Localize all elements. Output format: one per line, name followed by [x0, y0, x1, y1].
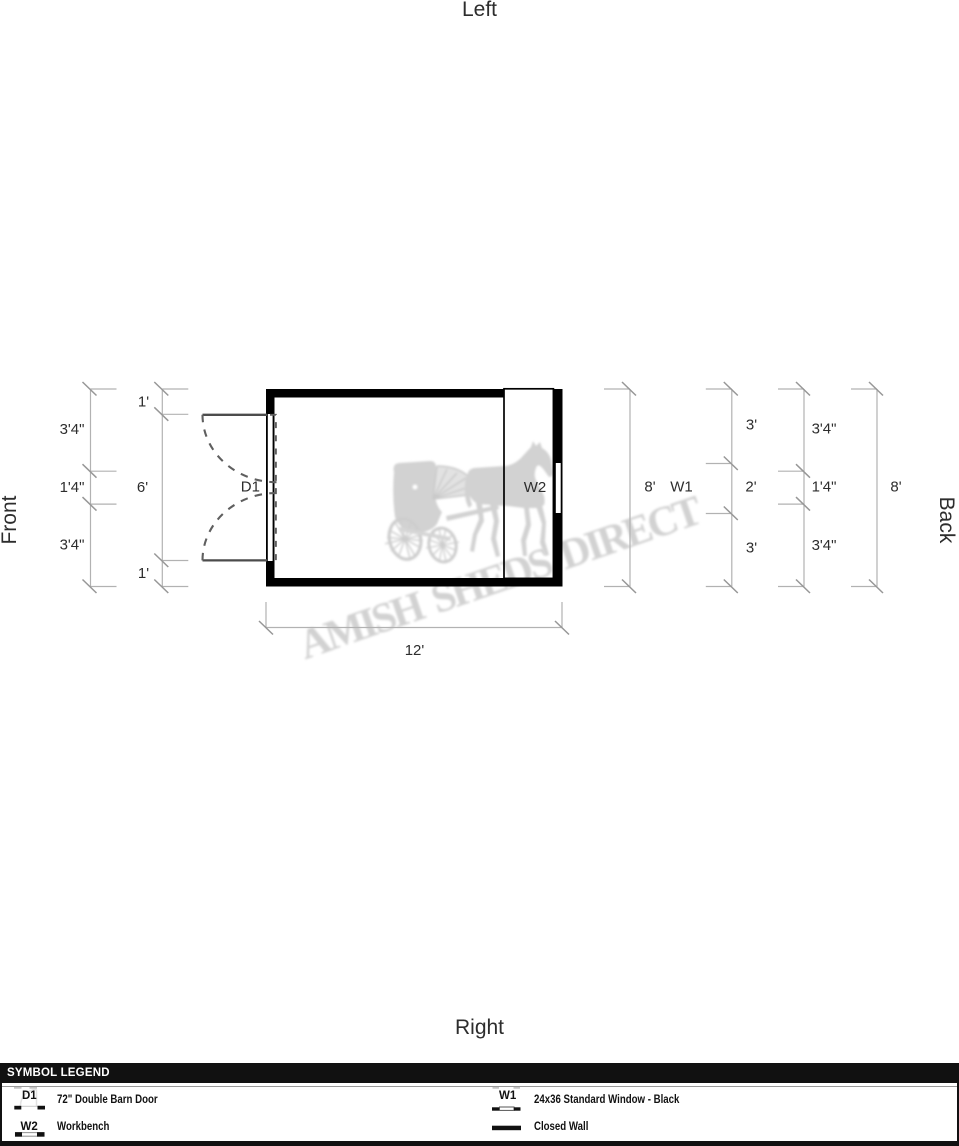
- svg-text:8': 8': [644, 479, 655, 496]
- svg-text:3': 3': [746, 540, 757, 557]
- svg-text:3'4": 3'4": [60, 537, 85, 554]
- svg-text:8': 8': [890, 479, 901, 496]
- svg-text:D1: D1: [241, 479, 260, 496]
- svg-text:3'4": 3'4": [812, 537, 837, 554]
- svg-text:1'4": 1'4": [60, 479, 85, 496]
- svg-text:W2: W2: [524, 479, 547, 496]
- svg-text:6': 6': [137, 479, 148, 496]
- svg-text:2': 2': [745, 479, 756, 496]
- svg-text:3'4": 3'4": [812, 421, 837, 438]
- svg-text:3': 3': [746, 417, 757, 434]
- svg-text:1': 1': [138, 565, 149, 582]
- svg-text:12': 12': [405, 642, 425, 659]
- svg-text:1'4": 1'4": [812, 479, 837, 496]
- svg-text:3'4": 3'4": [60, 421, 85, 438]
- svg-text:1': 1': [138, 394, 149, 411]
- svg-text:W1: W1: [670, 479, 693, 496]
